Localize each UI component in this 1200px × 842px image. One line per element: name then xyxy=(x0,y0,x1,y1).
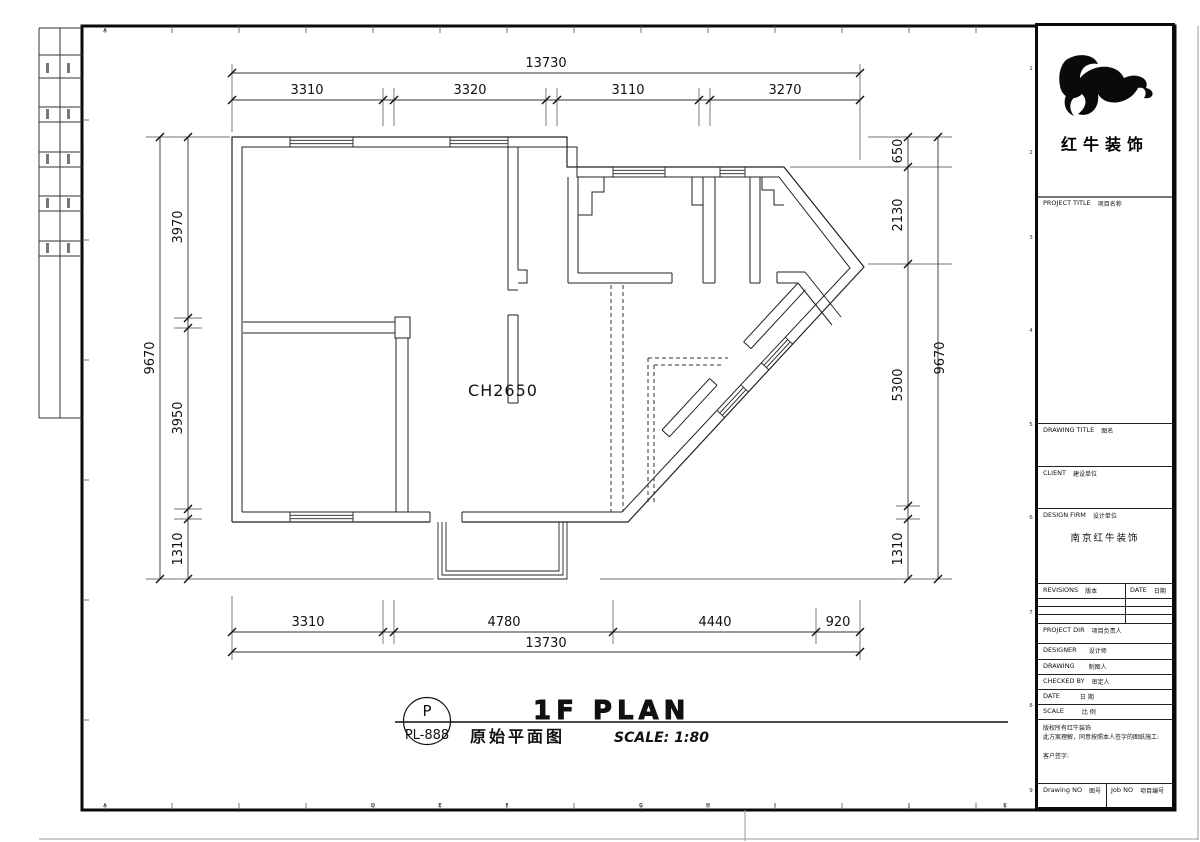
dim-left-overall: 9670 xyxy=(143,341,158,374)
copyright-note-2: 此方案理解，同意按照本人签字的图纸施工: xyxy=(1038,732,1172,741)
grid-number: 8 xyxy=(1029,703,1033,709)
grid-number: 1 xyxy=(1029,66,1033,72)
grid-letter: K xyxy=(1003,803,1007,809)
checked-by-label-cn: 审定人 xyxy=(1092,677,1110,686)
drawing-sheet: A A D E F G H I J K 1 2 3 4 5 6 7 8 9 xyxy=(0,0,1200,842)
window-symbols xyxy=(290,137,793,522)
dim-bottom-seg: 4780 xyxy=(487,615,520,630)
customer-sign-label: 客户签字: xyxy=(1038,751,1172,760)
job-no-label: Job NO xyxy=(1111,786,1133,794)
dim-top-seg: 3270 xyxy=(768,83,801,98)
dim-right-seg: 650 xyxy=(891,139,906,164)
dim-top-seg: 3110 xyxy=(611,83,644,98)
drawing-no-label-cn: 图号 xyxy=(1089,786,1101,795)
dim-bottom-seg: 4440 xyxy=(698,615,731,630)
drawing-tag-letter: P xyxy=(422,702,431,720)
grid-number: 3 xyxy=(1029,235,1033,241)
project-title-label-cn: 项目名称 xyxy=(1098,199,1122,208)
drawing-title-cn: 原始平面图 xyxy=(470,727,565,746)
project-dir-label: PROJECT DIR xyxy=(1043,626,1085,634)
revisions-label-cn: 版本 xyxy=(1085,586,1097,595)
drawing-no-label: Drawing NO xyxy=(1043,786,1082,794)
dim-top-seg: 3320 xyxy=(453,83,486,98)
designer-label: DESIGNER xyxy=(1043,646,1077,654)
dimension-top: 13730 3310 3320 3110 3270 xyxy=(228,56,864,160)
dimension-left: 3970 3950 1310 9670 xyxy=(143,133,434,583)
dim-bottom-seg: 3310 xyxy=(291,615,324,630)
dimension-bottom: 3310 4780 4440 920 13730 xyxy=(228,596,864,660)
dim-left-seg: 3950 xyxy=(171,401,186,434)
grid-letter: G xyxy=(639,803,643,809)
dim-top-seg: 3310 xyxy=(290,83,323,98)
dim-right-overall: 9670 xyxy=(933,341,948,374)
drawing-by-label-cn: 制图人 xyxy=(1089,662,1107,671)
dim-bottom-seg: 920 xyxy=(826,615,851,630)
grid-reference-marks xyxy=(82,26,1005,810)
grid-letter: F xyxy=(505,803,508,809)
grid-number: 7 xyxy=(1029,610,1033,616)
grid-number: 9 xyxy=(1029,788,1033,794)
drawing-tag-number: PL-888 xyxy=(405,728,449,743)
project-dir-label-cn: 项目负责人 xyxy=(1092,626,1122,635)
grid-letter: E xyxy=(438,803,442,809)
balcony-railing xyxy=(438,522,567,579)
dim-left-seg: 3970 xyxy=(171,210,186,243)
copyright-note-1: 版权所有红牛装饰 xyxy=(1038,723,1172,732)
date-label-cn: 日 期 xyxy=(1080,692,1094,701)
drawing-title-en: 1F PLAN xyxy=(533,696,690,726)
designer-label-cn: 设计师 xyxy=(1089,646,1107,655)
design-firm-label-cn: 设计单位 xyxy=(1093,511,1117,520)
dimension-right: 650 2130 5300 1310 9670 xyxy=(600,133,952,583)
dim-top-overall: 13730 xyxy=(525,56,566,71)
ceiling-height-label: CH2650 xyxy=(468,381,538,400)
grid-letter: D xyxy=(371,803,375,809)
drawing-title-label-cn: 图名 xyxy=(1101,426,1113,435)
grid-number: 6 xyxy=(1029,515,1033,521)
drawing-by-label: DRAWING xyxy=(1043,662,1075,670)
company-logo xyxy=(1038,40,1172,140)
dim-left-seg: 1310 xyxy=(171,532,186,565)
sheet-graphics: A A D E F G H I J K 1 2 3 4 5 6 7 8 9 xyxy=(0,0,1200,842)
grid-letter-top: A xyxy=(103,28,107,34)
floor-plan: CH2650 xyxy=(232,137,864,579)
left-fold-strip xyxy=(39,28,82,418)
sheet-title-block: P PL-888 1F PLAN 原始平面图 SCALE: 1:80 xyxy=(395,696,1008,746)
drawing-scale-text: SCALE: 1:80 xyxy=(614,730,709,746)
revisions-date-label: DATE xyxy=(1130,586,1147,594)
grid-number: 5 xyxy=(1029,422,1033,428)
dim-right-seg: 5300 xyxy=(891,368,906,401)
checked-by-label: CHECKED BY xyxy=(1043,677,1085,685)
grid-letter: H xyxy=(706,803,710,809)
grid-letter: J xyxy=(907,803,910,809)
grid-number: 2 xyxy=(1029,150,1033,156)
dim-right-seg: 1310 xyxy=(891,532,906,565)
job-no-label-cn: 项目编号 xyxy=(1140,786,1164,795)
scale-label-cn: 比 例 xyxy=(1082,707,1096,716)
project-title-label: PROJECT TITLE xyxy=(1043,199,1091,207)
grid-number: 4 xyxy=(1029,328,1033,334)
revisions-date-label-cn: 日期 xyxy=(1154,586,1166,595)
interior-walls xyxy=(243,147,841,512)
client-label: CLIENT xyxy=(1043,469,1066,477)
title-block: 红牛装饰 PROJECT TITLE 项目名称 DRAWING TITLE 图名… xyxy=(1035,23,1175,810)
client-label-cn: 建设单位 xyxy=(1073,469,1097,478)
revisions-label: REVISIONS xyxy=(1043,586,1078,594)
grid-letter: A xyxy=(103,803,107,809)
drawing-title-label: DRAWING TITLE xyxy=(1043,426,1094,434)
company-name: 红牛装饰 xyxy=(1038,131,1172,155)
dim-bottom-overall: 13730 xyxy=(525,636,566,651)
dim-right-seg: 2130 xyxy=(891,198,906,231)
grid-letter: I xyxy=(774,803,776,809)
date-label: DATE xyxy=(1043,692,1060,700)
design-firm-value: 南京红牛装饰 xyxy=(1038,530,1172,544)
scale-label: SCALE xyxy=(1043,707,1064,715)
design-firm-label: DESIGN FIRM xyxy=(1043,511,1086,519)
